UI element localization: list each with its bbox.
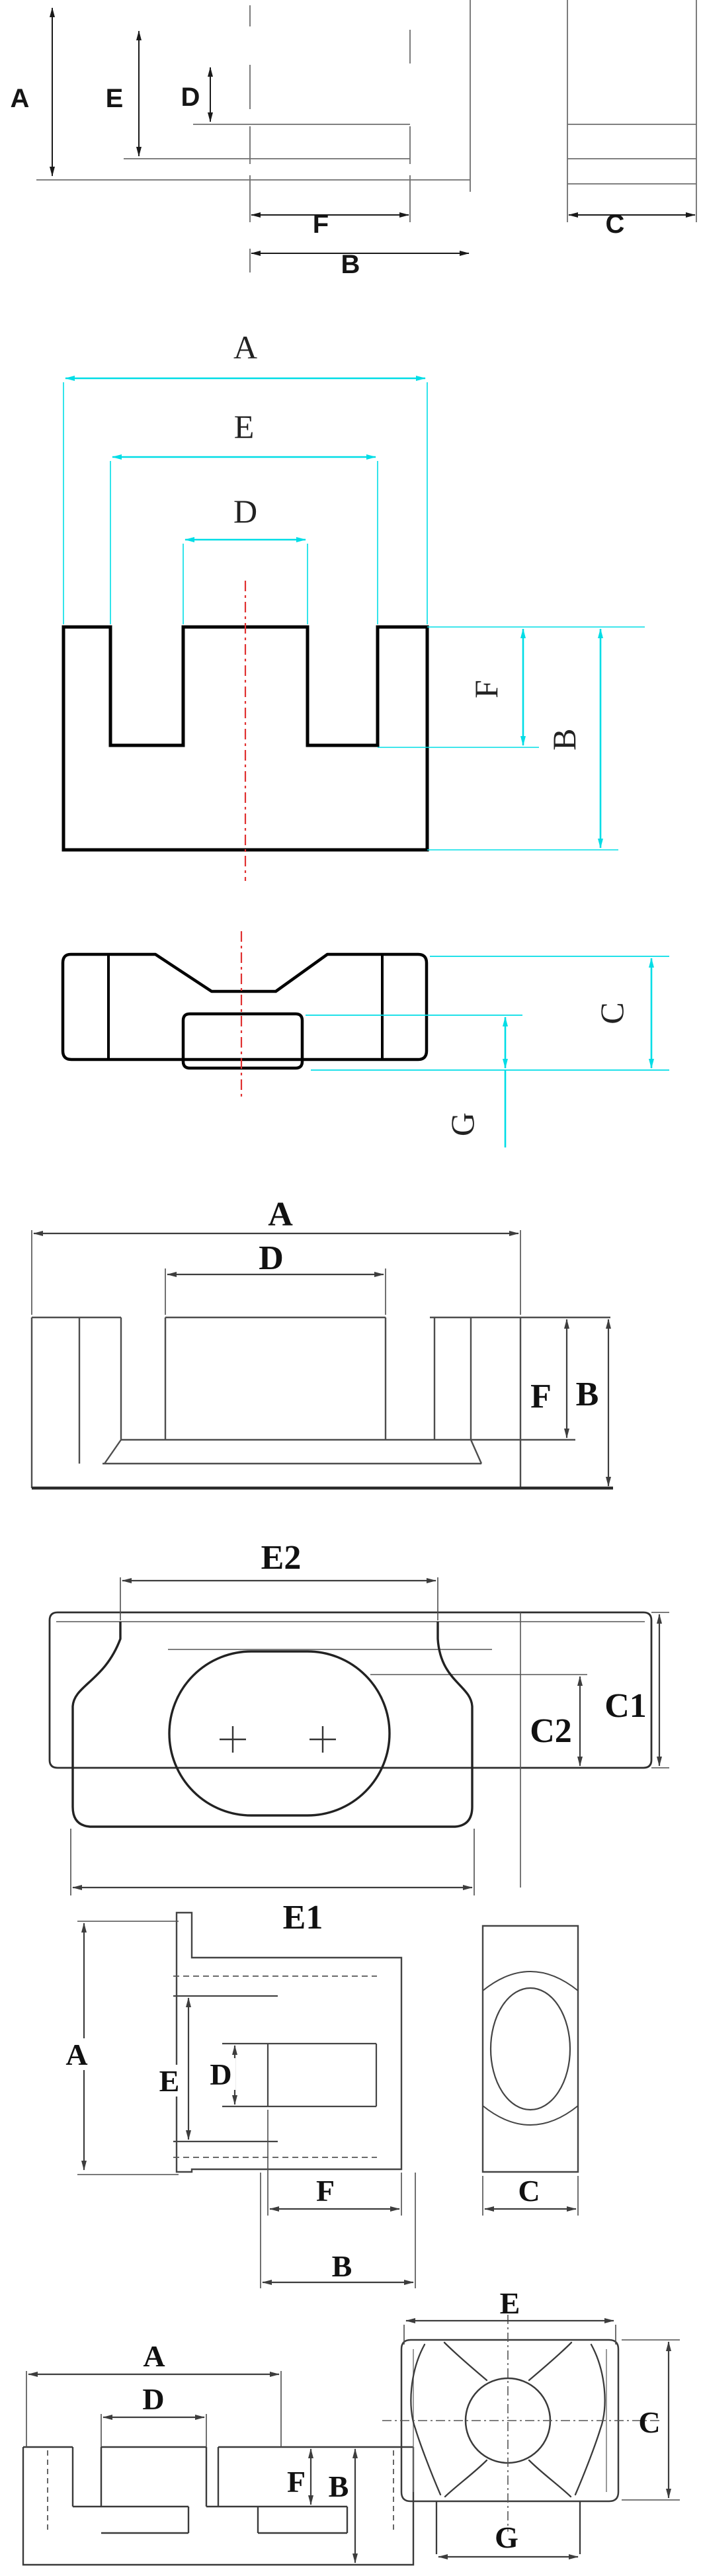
dim-label-d: D bbox=[181, 83, 200, 112]
dimensions bbox=[52, 8, 695, 253]
dimension-labels: A E D F B C bbox=[11, 83, 625, 274]
dim-label-e: E bbox=[234, 408, 255, 445]
dim-label-b: B bbox=[341, 250, 360, 274]
dim-label-a: A bbox=[268, 1196, 293, 1233]
technical-drawing-sheet: A E D F B C A E D F B bbox=[0, 0, 701, 2576]
extension-lines bbox=[26, 2325, 680, 2500]
drawing-rm-core-views: A D F B E C G bbox=[0, 2275, 701, 2576]
end-view-outline bbox=[483, 1926, 578, 2172]
dim-label-g: G bbox=[495, 2520, 518, 2554]
dim-label-f: F bbox=[316, 2174, 335, 2208]
dim-label-c: C bbox=[593, 1002, 630, 1024]
core-outline bbox=[63, 954, 427, 1059]
flange-and-post-lines bbox=[173, 1996, 376, 2141]
part-geometry bbox=[173, 1913, 578, 2172]
dim-label-d: D bbox=[233, 493, 257, 530]
drawing-core-section-views: A E D F B C bbox=[0, 0, 701, 274]
dimensions bbox=[34, 1233, 608, 1486]
part-geometry bbox=[50, 1612, 651, 1888]
dim-label-f: F bbox=[530, 1378, 552, 1415]
dim-label-f: F bbox=[287, 2465, 306, 2499]
dim-label-f: F bbox=[313, 210, 329, 239]
dim-label-a: A bbox=[11, 84, 30, 113]
center-post-ellipse bbox=[491, 1988, 570, 2110]
part-outline bbox=[36, 0, 696, 272]
drawing-pot-core-front: A D F B bbox=[0, 1184, 701, 1501]
dim-label-c: C bbox=[606, 210, 625, 239]
dim-label-g: G bbox=[444, 1112, 481, 1136]
dim-label-a: A bbox=[233, 329, 257, 366]
dim-label-c: C bbox=[518, 2174, 540, 2208]
part-geometry bbox=[32, 1317, 613, 1488]
part-geometry bbox=[63, 931, 427, 1097]
dim-label-b: B bbox=[576, 1376, 599, 1413]
drawing-ee-core-top: C G bbox=[0, 913, 701, 1177]
dim-label-c: C bbox=[638, 2405, 660, 2439]
dim-label-a: A bbox=[65, 2038, 87, 2071]
dimensions bbox=[65, 378, 600, 848]
dim-label-a: A bbox=[143, 2339, 165, 2373]
drawing-ee-core-front: A E D F B bbox=[0, 274, 701, 890]
dim-label-d: D bbox=[142, 2382, 164, 2416]
hidden-edge-lines bbox=[173, 1976, 377, 2157]
dim-label-e: E bbox=[159, 2064, 180, 2098]
end-view-arcs bbox=[483, 1972, 578, 2125]
dimension-labels: A E D F B C bbox=[62, 2038, 540, 2283]
end-cap-lines bbox=[108, 954, 382, 1059]
dim-label-d: D bbox=[259, 1239, 284, 1277]
dim-label-f: F bbox=[468, 680, 505, 698]
hole-cross-marks bbox=[220, 1726, 336, 1753]
dim-label-e: E bbox=[106, 84, 124, 113]
part-geometry bbox=[36, 0, 696, 272]
inner-edge-lines bbox=[56, 1612, 645, 1888]
dimensions bbox=[84, 1923, 576, 2282]
dimensions bbox=[505, 958, 651, 1147]
dim-label-b: B bbox=[329, 2470, 349, 2503]
centerlines bbox=[382, 2315, 661, 2532]
drawing-er-core-side: A E D F B C bbox=[0, 1891, 701, 2308]
extension-lines bbox=[26, 2325, 680, 2500]
part-geometry bbox=[63, 581, 427, 881]
dim-label-d: D bbox=[210, 2057, 231, 2091]
dim-label-c2: C2 bbox=[530, 1712, 572, 1750]
dim-label-c1: C1 bbox=[604, 1687, 647, 1725]
bowtie-cutouts bbox=[411, 2343, 604, 2497]
part-outline bbox=[32, 1317, 610, 1488]
side-view-outline bbox=[177, 1913, 401, 2172]
dim-label-e: E bbox=[500, 2286, 520, 2320]
extension-lines bbox=[63, 382, 645, 850]
dimension-labels: C G bbox=[444, 1002, 630, 1136]
dim-label-b: B bbox=[546, 728, 583, 750]
dimension-labels: E2 C1 C2 E1 bbox=[261, 1539, 647, 1936]
cyan-extension-lines bbox=[63, 382, 645, 850]
dimensions bbox=[28, 2321, 669, 2563]
dimension-labels: A D F B bbox=[259, 1196, 598, 1415]
center-post-oval bbox=[169, 1651, 390, 1815]
dim-label-e2: E2 bbox=[261, 1539, 302, 1577]
bottom-view-geometry bbox=[382, 2315, 661, 2554]
